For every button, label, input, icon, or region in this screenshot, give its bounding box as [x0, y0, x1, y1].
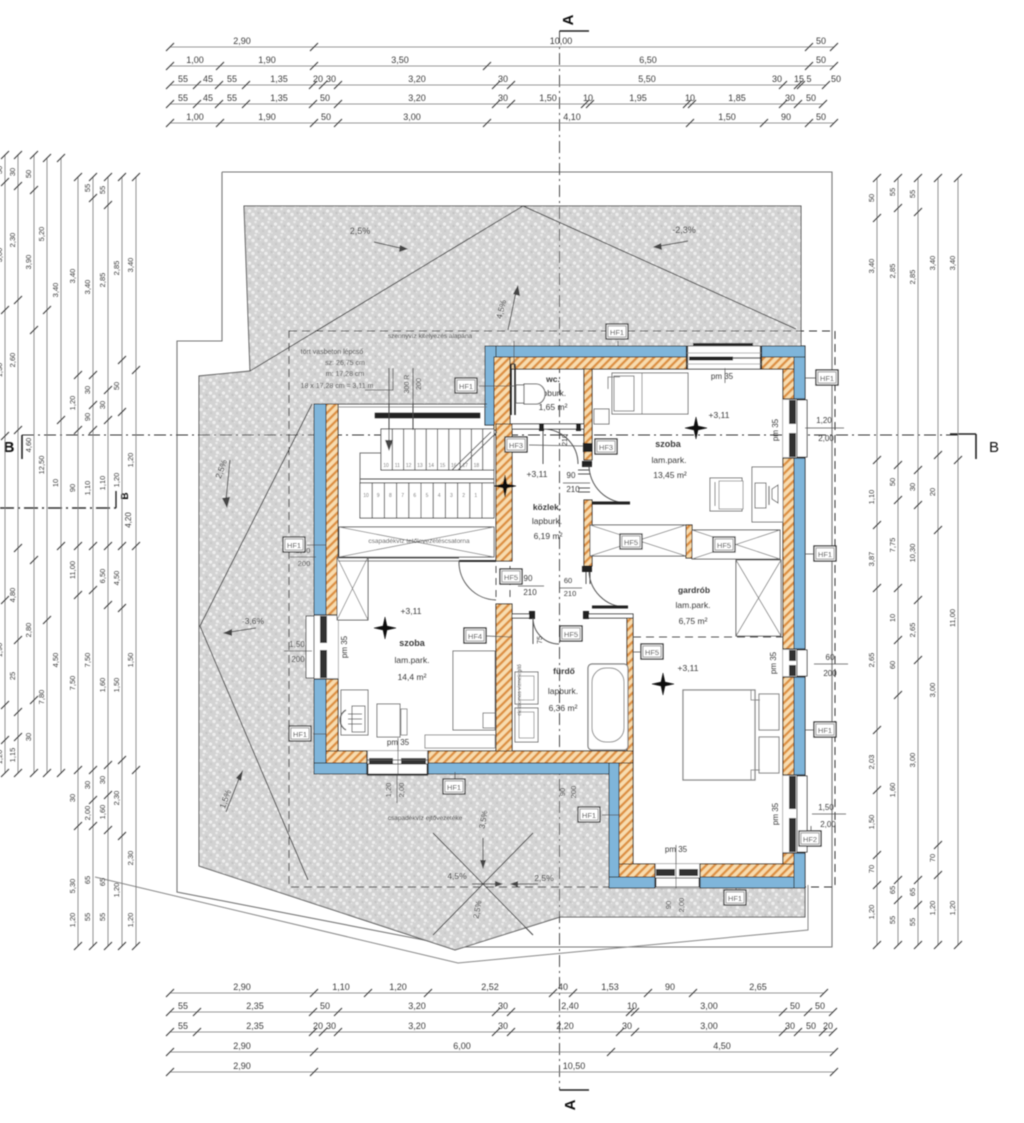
- svg-text:3,40: 3,40: [126, 258, 135, 273]
- svg-text:1,20: 1,20: [0, 750, 4, 765]
- svg-text:1,60: 1,60: [98, 678, 107, 693]
- svg-text:2: 2: [462, 493, 465, 499]
- svg-text:30: 30: [498, 1001, 508, 1011]
- svg-text:7,75: 7,75: [888, 538, 897, 553]
- svg-text:3,00: 3,00: [700, 1021, 718, 1031]
- svg-text:3,40: 3,40: [928, 256, 937, 271]
- svg-text:8: 8: [389, 493, 392, 499]
- svg-text:11,00: 11,00: [948, 609, 957, 627]
- svg-text:55: 55: [888, 916, 897, 924]
- svg-text:3,00: 3,00: [928, 683, 937, 698]
- svg-text:10: 10: [627, 1001, 637, 1011]
- svg-text:210: 210: [566, 485, 580, 494]
- svg-text:50: 50: [321, 112, 331, 122]
- svg-text:3,40: 3,40: [83, 280, 92, 295]
- svg-text:30: 30: [24, 733, 33, 741]
- svg-text:1,53: 1,53: [601, 982, 619, 992]
- svg-text:300 R: 300 R: [404, 375, 411, 394]
- svg-text:3,40: 3,40: [68, 269, 77, 284]
- svg-text:szennyvíz kitelyezés alapána: szennyvíz kitelyezés alapána: [388, 333, 473, 340]
- svg-text:200: 200: [291, 655, 305, 664]
- svg-text:csapadékvíz ejtővezetéke: csapadékvíz ejtővezetéke: [388, 815, 463, 822]
- svg-text:1,60: 1,60: [888, 783, 897, 798]
- svg-text:30: 30: [83, 386, 92, 394]
- svg-text:lam.park.: lam.park.: [676, 600, 711, 610]
- svg-text:2,30: 2,30: [112, 791, 121, 806]
- svg-text:2,35: 2,35: [246, 1021, 264, 1031]
- svg-text:200: 200: [416, 378, 423, 390]
- svg-text:B: B: [989, 439, 999, 456]
- svg-text:HF1: HF1: [447, 783, 461, 792]
- svg-text:pm 35: pm 35: [340, 635, 349, 658]
- svg-text:1,20: 1,20: [112, 473, 121, 488]
- svg-text:50: 50: [24, 170, 33, 178]
- svg-text:12,50: 12,50: [37, 456, 46, 475]
- svg-text:2,00: 2,00: [818, 434, 834, 443]
- svg-text:20: 20: [313, 74, 323, 84]
- svg-text:30: 30: [772, 74, 782, 84]
- svg-text:13,45 m²: 13,45 m²: [653, 470, 687, 480]
- svg-text:14,4 m²: 14,4 m²: [398, 672, 427, 682]
- svg-text:30: 30: [98, 776, 107, 784]
- svg-text:2,65: 2,65: [749, 982, 767, 992]
- svg-text:1,85: 1,85: [728, 93, 746, 103]
- svg-text:90: 90: [68, 484, 77, 492]
- svg-text:50: 50: [816, 36, 826, 46]
- svg-text:50: 50: [320, 1001, 330, 1011]
- svg-text:2,85: 2,85: [908, 270, 917, 285]
- svg-text:1,50: 1,50: [126, 653, 135, 668]
- svg-text:HF5: HF5: [564, 630, 578, 639]
- svg-text:90: 90: [558, 788, 567, 796]
- svg-text:1,20: 1,20: [112, 883, 121, 898]
- svg-text:pm 35: pm 35: [771, 802, 780, 825]
- svg-text:+3,11: +3,11: [678, 663, 699, 673]
- svg-text:10: 10: [363, 493, 369, 499]
- svg-text:12: 12: [406, 463, 412, 469]
- svg-text:elektromos vízmelegítő: elektromos vízmelegítő: [517, 664, 523, 716]
- svg-text:pm 35: pm 35: [711, 372, 734, 381]
- svg-text:30: 30: [68, 794, 77, 802]
- svg-text:7,80: 7,80: [37, 690, 46, 705]
- svg-text:55: 55: [178, 74, 188, 84]
- svg-text:4: 4: [438, 493, 441, 499]
- svg-text:10: 10: [51, 479, 60, 487]
- svg-text:3,90: 3,90: [24, 255, 33, 270]
- svg-text:7,50: 7,50: [68, 676, 77, 691]
- svg-text:5,30: 5,30: [68, 879, 77, 894]
- svg-text:HF1: HF1: [818, 726, 832, 735]
- svg-text:HF3: HF3: [599, 443, 613, 452]
- svg-text:30: 30: [326, 1021, 336, 1031]
- svg-text:2,30: 2,30: [8, 233, 17, 248]
- svg-text:HF2: HF2: [803, 835, 817, 844]
- svg-text:2,80: 2,80: [24, 623, 33, 638]
- svg-text:13: 13: [417, 463, 423, 469]
- svg-text:30: 30: [908, 483, 917, 491]
- svg-text:2,00: 2,00: [677, 898, 686, 913]
- svg-text:2,90: 2,90: [233, 1061, 251, 1071]
- svg-text:15: 15: [794, 74, 804, 84]
- svg-text:55: 55: [83, 184, 92, 192]
- svg-text:90: 90: [665, 982, 675, 992]
- svg-text:60: 60: [564, 576, 572, 585]
- svg-text:1,10: 1,10: [867, 490, 876, 505]
- svg-text:1: 1: [474, 493, 477, 499]
- svg-text:1,50: 1,50: [818, 803, 834, 812]
- svg-text:7,50: 7,50: [83, 653, 92, 668]
- svg-text:10: 10: [383, 463, 389, 469]
- svg-text:2,5%: 2,5%: [350, 226, 371, 236]
- svg-text:1,10: 1,10: [332, 982, 350, 992]
- svg-text:1,50: 1,50: [112, 678, 121, 693]
- svg-text:30: 30: [83, 781, 92, 789]
- svg-text:1,90: 1,90: [258, 55, 276, 65]
- svg-text:70: 70: [928, 854, 937, 862]
- svg-text:60: 60: [888, 661, 897, 669]
- svg-text:200: 200: [298, 559, 311, 568]
- svg-text:3,00: 3,00: [0, 248, 4, 263]
- svg-text:50: 50: [816, 112, 826, 122]
- svg-text:wc.: wc.: [545, 374, 560, 384]
- svg-text:65: 65: [98, 878, 107, 886]
- svg-text:3,50: 3,50: [391, 55, 409, 65]
- svg-text:4,80: 4,80: [8, 588, 17, 603]
- svg-text:1,00: 1,00: [186, 55, 204, 65]
- svg-text:1,20: 1,20: [389, 982, 407, 992]
- svg-text:50: 50: [320, 93, 330, 103]
- svg-text:55: 55: [888, 188, 897, 196]
- svg-text:45: 45: [203, 74, 213, 84]
- svg-text:200: 200: [823, 669, 837, 678]
- svg-text:1,20: 1,20: [126, 913, 135, 928]
- svg-text:1,15: 1,15: [8, 748, 17, 763]
- svg-text:HF1: HF1: [820, 374, 834, 383]
- svg-text:3,40: 3,40: [867, 259, 876, 274]
- svg-text:2,52: 2,52: [481, 982, 499, 992]
- svg-text:3,20: 3,20: [408, 93, 426, 103]
- svg-text:3,00: 3,00: [908, 753, 917, 768]
- svg-text:1,35: 1,35: [270, 93, 288, 103]
- svg-text:pm 35: pm 35: [771, 418, 780, 441]
- svg-text:közlek.: közlek.: [533, 502, 561, 512]
- svg-text:20: 20: [313, 1021, 323, 1031]
- svg-text:30: 30: [98, 401, 107, 409]
- svg-text:90: 90: [781, 112, 791, 122]
- svg-text:18 x 17,28 cm = 3,11 m: 18 x 17,28 cm = 3,11 m: [301, 383, 374, 390]
- svg-text:1,20: 1,20: [384, 783, 393, 798]
- svg-text:lapburk.: lapburk.: [532, 516, 562, 526]
- svg-text:HF1: HF1: [459, 382, 473, 391]
- svg-text:4,50: 4,50: [51, 653, 60, 668]
- svg-text:fürdő: fürdő: [553, 666, 575, 676]
- svg-text:3,40: 3,40: [51, 283, 60, 298]
- svg-text:A: A: [562, 1099, 579, 1110]
- svg-text:6,19 m²: 6,19 m²: [534, 531, 563, 541]
- svg-text:30: 30: [785, 93, 795, 103]
- svg-text:45: 45: [203, 93, 213, 103]
- svg-text:1,20: 1,20: [68, 396, 77, 411]
- svg-text:55: 55: [98, 186, 107, 194]
- svg-text:szoba: szoba: [655, 439, 682, 449]
- svg-text:A: A: [560, 14, 577, 25]
- svg-text:2,20: 2,20: [556, 1021, 574, 1031]
- svg-text:6,00: 6,00: [453, 1041, 471, 1051]
- svg-text:10,30: 10,30: [908, 544, 917, 563]
- svg-text:1,90: 1,90: [0, 643, 4, 658]
- svg-text:2,85: 2,85: [888, 264, 897, 279]
- svg-text:1,35: 1,35: [270, 74, 288, 84]
- svg-text:2,90: 2,90: [233, 1041, 251, 1051]
- svg-text:1,20: 1,20: [816, 416, 832, 425]
- svg-text:2,65: 2,65: [908, 623, 917, 638]
- svg-text:4,10: 4,10: [563, 112, 581, 122]
- svg-text:3,20: 3,20: [408, 1001, 426, 1011]
- svg-text:15: 15: [440, 463, 446, 469]
- svg-text:210: 210: [523, 588, 537, 597]
- svg-text:30: 30: [498, 1021, 508, 1031]
- svg-text:30: 30: [498, 74, 508, 84]
- svg-text:1,20: 1,20: [867, 905, 876, 920]
- svg-text:3,40: 3,40: [948, 256, 957, 271]
- svg-text:-3,6%: -3,6%: [242, 616, 265, 626]
- svg-text:200: 200: [569, 786, 578, 799]
- svg-text:lapburk.: lapburk.: [548, 686, 578, 696]
- svg-text:1,00: 1,00: [186, 112, 204, 122]
- svg-text:1,20: 1,20: [126, 453, 135, 468]
- svg-text:4,60: 4,60: [24, 438, 33, 453]
- svg-text:6: 6: [413, 493, 416, 499]
- svg-text:55: 55: [98, 913, 107, 921]
- svg-text:14: 14: [428, 463, 434, 469]
- svg-text:90: 90: [664, 901, 673, 909]
- svg-text:sz: 26,75 cm: sz: 26,75 cm: [325, 360, 365, 367]
- svg-text:1,50: 1,50: [867, 815, 876, 830]
- svg-text:55: 55: [908, 190, 917, 198]
- svg-text:2,90: 2,90: [233, 36, 251, 46]
- svg-text:30: 30: [326, 74, 336, 84]
- svg-text:55: 55: [83, 913, 92, 921]
- svg-text:1,20: 1,20: [948, 901, 957, 916]
- svg-text:+3,11: +3,11: [401, 606, 422, 616]
- svg-text:55: 55: [227, 93, 237, 103]
- svg-text:10,00: 10,00: [550, 36, 573, 46]
- svg-text:30: 30: [8, 168, 17, 176]
- svg-text:3,20: 3,20: [408, 74, 426, 84]
- svg-text:HF5: HF5: [624, 538, 638, 547]
- svg-text:HF5: HF5: [717, 541, 731, 550]
- svg-text:55: 55: [908, 918, 917, 926]
- svg-text:1,90: 1,90: [258, 112, 276, 122]
- svg-text:HF5: HF5: [645, 648, 659, 657]
- svg-text:9: 9: [377, 493, 380, 499]
- svg-text:2,30: 2,30: [126, 851, 135, 866]
- svg-text:50: 50: [867, 194, 876, 202]
- svg-text:HF5: HF5: [504, 573, 518, 582]
- svg-text:2,85: 2,85: [98, 273, 107, 288]
- svg-text:210: 210: [564, 589, 577, 598]
- svg-text:2,40: 2,40: [561, 1001, 579, 1011]
- svg-text:csapadékvíz tetőlevezetéscsato: csapadékvíz tetőlevezetéscsatorna: [368, 538, 470, 545]
- svg-text:HF1: HF1: [818, 550, 832, 559]
- svg-text:75: 75: [537, 636, 544, 644]
- svg-text:10: 10: [685, 93, 695, 103]
- svg-text:-2,3%: -2,3%: [672, 225, 696, 235]
- svg-text:40: 40: [558, 982, 568, 992]
- svg-text:65: 65: [888, 886, 897, 894]
- svg-text:1,50: 1,50: [718, 112, 736, 122]
- svg-text:3,20: 3,20: [408, 1021, 426, 1031]
- svg-text:60: 60: [826, 653, 835, 662]
- svg-text:50: 50: [888, 478, 897, 486]
- svg-text:2,00: 2,00: [397, 783, 406, 798]
- svg-text:90: 90: [524, 574, 533, 583]
- svg-text:szoba: szoba: [399, 638, 426, 648]
- svg-text:1,50: 1,50: [539, 93, 557, 103]
- svg-text:50: 50: [112, 382, 121, 390]
- svg-text:1,10: 1,10: [83, 481, 92, 496]
- svg-text:HF1: HF1: [287, 541, 301, 550]
- svg-text:2,03: 2,03: [867, 755, 876, 770]
- svg-text:70: 70: [867, 865, 876, 873]
- svg-text:50: 50: [806, 1021, 816, 1031]
- svg-text:50: 50: [831, 74, 841, 84]
- svg-text:gardrób: gardrób: [678, 585, 710, 595]
- svg-text:55: 55: [178, 93, 188, 103]
- svg-text:30: 30: [622, 1021, 632, 1031]
- svg-text:5: 5: [426, 493, 429, 499]
- svg-text:2,35: 2,35: [246, 1001, 264, 1011]
- svg-text:tört vasbeton lépcső: tört vasbeton lépcső: [301, 349, 364, 356]
- svg-text:50: 50: [815, 1001, 825, 1011]
- svg-text:50: 50: [790, 1001, 800, 1011]
- svg-text:30: 30: [498, 93, 508, 103]
- svg-text:HF3: HF3: [509, 441, 523, 450]
- svg-text:2,00: 2,00: [83, 806, 92, 821]
- svg-text:HF4: HF4: [468, 632, 482, 641]
- svg-text:65: 65: [83, 876, 92, 884]
- svg-text:65: 65: [908, 888, 917, 896]
- svg-text:1,65 m²: 1,65 m²: [539, 402, 568, 412]
- svg-text:5: 5: [806, 74, 811, 84]
- svg-text:2,85: 2,85: [112, 261, 121, 276]
- svg-text:10: 10: [888, 614, 897, 622]
- svg-text:+3,11: +3,11: [709, 410, 730, 420]
- svg-text:11: 11: [395, 463, 400, 469]
- svg-text:1,95: 1,95: [629, 93, 647, 103]
- svg-text:m: 17,28 cm: m: 17,28 cm: [326, 371, 365, 378]
- svg-text:3,00: 3,00: [403, 112, 421, 122]
- svg-text:2,60: 2,60: [8, 353, 17, 368]
- svg-text:3,00: 3,00: [700, 1001, 718, 1011]
- svg-text:4,20: 4,20: [124, 512, 133, 528]
- svg-text:2,00: 2,00: [820, 820, 836, 829]
- svg-text:7: 7: [401, 493, 404, 499]
- svg-text:1,20: 1,20: [68, 913, 77, 928]
- svg-text:50: 50: [806, 93, 816, 103]
- svg-text:50: 50: [0, 166, 4, 174]
- svg-text:HF1: HF1: [582, 811, 596, 820]
- svg-text:5,20: 5,20: [37, 227, 46, 242]
- svg-text:20: 20: [823, 1021, 833, 1031]
- svg-text:HF1: HF1: [728, 894, 742, 903]
- svg-text:4,50: 4,50: [112, 571, 121, 586]
- svg-text:6,36 m²: 6,36 m²: [549, 703, 578, 713]
- svg-text:2,5%: 2,5%: [534, 873, 554, 883]
- svg-text:3,87: 3,87: [867, 552, 876, 567]
- svg-text:HF1: HF1: [610, 328, 624, 337]
- svg-text:1,30: 1,30: [0, 363, 4, 378]
- svg-text:17: 17: [462, 463, 468, 469]
- svg-text:6,75 m²: 6,75 m²: [679, 616, 708, 626]
- svg-text:1,50: 1,50: [289, 640, 305, 649]
- svg-text:11,00: 11,00: [68, 561, 77, 579]
- svg-text:20: 20: [928, 488, 937, 496]
- svg-text:90: 90: [83, 413, 92, 421]
- svg-text:25: 25: [8, 672, 17, 680]
- svg-text:55: 55: [178, 1021, 188, 1031]
- svg-text:10: 10: [583, 93, 593, 103]
- svg-text:18: 18: [474, 463, 480, 469]
- svg-text:HF1: HF1: [293, 730, 307, 739]
- svg-text:lam.park.: lam.park.: [652, 455, 687, 465]
- svg-text:4,50: 4,50: [713, 1041, 731, 1051]
- svg-text:5,50: 5,50: [638, 74, 656, 84]
- svg-text:1,10: 1,10: [98, 476, 107, 491]
- svg-text:1,20: 1,20: [928, 901, 937, 916]
- svg-text:lam.park.: lam.park.: [395, 655, 430, 665]
- svg-text:30: 30: [785, 1021, 795, 1031]
- svg-text:90: 90: [567, 471, 576, 480]
- svg-text:3: 3: [450, 493, 453, 499]
- svg-text:55: 55: [178, 1001, 188, 1011]
- svg-text:6,50: 6,50: [639, 55, 657, 65]
- svg-text:4,5%: 4,5%: [447, 871, 467, 881]
- svg-text:1,60: 1,60: [98, 805, 107, 820]
- svg-text:50: 50: [816, 55, 826, 65]
- svg-text:+3,11: +3,11: [527, 469, 548, 479]
- svg-text:2,90: 2,90: [233, 982, 251, 992]
- svg-text:210: 210: [562, 434, 569, 446]
- svg-text:2,65: 2,65: [867, 653, 876, 668]
- svg-text:pm 35: pm 35: [769, 651, 778, 674]
- svg-text:10,50: 10,50: [563, 1061, 586, 1071]
- svg-text:6,50: 6,50: [98, 569, 107, 584]
- svg-text:55: 55: [227, 74, 237, 84]
